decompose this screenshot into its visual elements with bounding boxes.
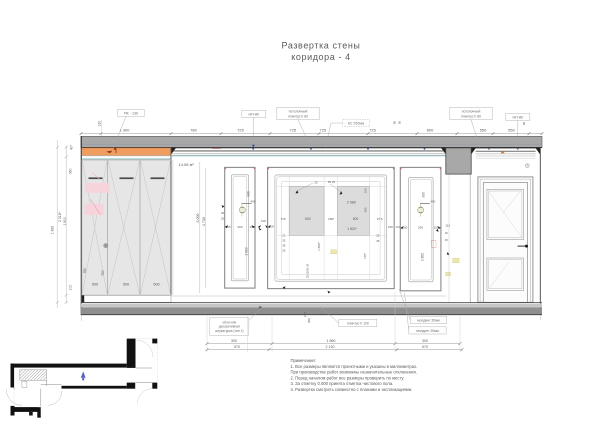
svg-text:1 800*: 1 800* (317, 241, 321, 251)
svg-text:725: 725 (237, 128, 244, 133)
svg-text:900: 900 (247, 191, 251, 197)
svg-text:1 892: 1 892 (51, 226, 55, 235)
svg-text:600: 600 (353, 217, 359, 221)
svg-text:715: 715 (280, 217, 285, 221)
svg-text:780: 780 (83, 268, 87, 274)
svg-text:180*: 180* (328, 217, 335, 221)
svg-text:27.5: 27.5 (377, 217, 383, 221)
svg-text:3. За отметку 0.000 принята от: 3. За отметку 0.000 принята отметка чист… (291, 381, 394, 386)
svg-text:потолочный: потолочный (462, 109, 481, 113)
svg-text:2 980: 2 980 (347, 200, 356, 204)
svg-text:290: 290 (418, 226, 423, 230)
svg-text:обои или: обои или (222, 320, 236, 324)
svg-text:780: 780 (190, 128, 197, 133)
svg-text:НП-80: НП-80 (248, 112, 259, 116)
svg-text:35 (100) 35: 35 (100) 35 (306, 263, 310, 278)
svg-text:100: 100 (402, 226, 407, 230)
svg-text:500: 500 (92, 282, 98, 286)
svg-text:плинтус h 80: плинтус h 80 (288, 114, 308, 118)
svg-text:1 800: 1 800 (244, 247, 248, 255)
svg-text:900: 900 (422, 192, 426, 198)
svg-text:100: 100 (388, 225, 393, 229)
svg-text:Примечания:: Примечания: (291, 358, 316, 363)
svg-text:400: 400 (430, 199, 435, 203)
svg-text:1 800: 1 800 (420, 253, 424, 261)
svg-text:25: 25 (445, 238, 449, 242)
svg-text:35: 35 (376, 239, 380, 243)
svg-text:600: 600 (305, 217, 311, 221)
svg-text:35: 35 (221, 211, 225, 215)
svg-text:(50): (50) (307, 318, 311, 323)
svg-text:570: 570 (234, 345, 240, 349)
svg-text:100: 100 (68, 285, 72, 291)
svg-text:290: 290 (237, 225, 242, 229)
svg-text:16: 16 (445, 231, 449, 235)
svg-text:КС 250мм: КС 250мм (348, 122, 365, 126)
svg-text:400: 400 (250, 200, 255, 204)
svg-text:110: 110 (445, 223, 450, 227)
svg-text:4. Развертки смотреть совместн: 4. Развертки смотреть совместно с планам… (291, 387, 413, 392)
svg-text:570: 570 (422, 345, 428, 349)
svg-text:потолочный: потолочный (289, 109, 308, 113)
svg-text:2 130: 2 130 (326, 345, 335, 349)
svg-text:молдинг 25мм: молдинг 25мм (416, 329, 439, 333)
svg-text:50: 50 (398, 121, 402, 125)
svg-text:600: 600 (363, 207, 367, 212)
svg-text:50: 50 (522, 122, 526, 126)
svg-text:25: 25 (314, 180, 318, 184)
svg-text:100: 100 (303, 312, 307, 317)
svg-text:300: 300 (422, 339, 428, 343)
svg-text:1 730: 1 730 (202, 217, 206, 226)
svg-text:плинтус h 100: плинтус h 100 (347, 322, 369, 326)
svg-text:130: 130 (97, 121, 101, 127)
svg-text:550: 550 (480, 128, 487, 133)
svg-text:725: 725 (369, 128, 376, 133)
svg-text:25: 25 (282, 249, 286, 253)
svg-text:600: 600 (427, 128, 434, 133)
svg-text:500: 500 (153, 282, 159, 286)
svg-text:725: 725 (290, 128, 297, 133)
svg-text:2. Перед началом работ все раз: 2. Перед началом работ все размеры прове… (291, 375, 405, 380)
svg-text:360: 360 (68, 168, 72, 174)
svg-text:Развертка стены: Развертка стены (282, 41, 361, 51)
svg-text:550: 550 (508, 128, 515, 133)
svg-text:50 25: 50 25 (328, 180, 336, 184)
svg-text:молдинг 35мм: молдинг 35мм (417, 318, 440, 322)
svg-text:ПК - 130: ПК - 130 (124, 111, 138, 115)
svg-text:штукатурка (тип 1): штукатурка (тип 1) (215, 329, 243, 333)
svg-text:100: 100 (261, 219, 266, 223)
svg-text:14.08 м²: 14.08 м² (179, 162, 195, 167)
svg-text:500: 500 (123, 282, 129, 286)
svg-text:730*: 730* (363, 252, 367, 259)
svg-text:1. Все размеры являются проект: 1. Все размеры являются проектными и ука… (291, 364, 418, 369)
svg-text:1 860: 1 860 (327, 339, 336, 343)
svg-text:750: 750 (101, 270, 105, 276)
svg-text:25: 25 (221, 217, 225, 221)
svg-text:коридора - 4: коридора - 4 (291, 52, 351, 62)
svg-text:1 900: 1 900 (63, 217, 67, 226)
svg-text:35: 35 (282, 244, 286, 248)
svg-text:При производстве работ возможн: При производстве работ возможны незначит… (291, 370, 417, 375)
svg-text:плинтус h 80: плинтус h 80 (461, 114, 481, 118)
svg-text:300: 300 (231, 339, 237, 343)
svg-text:НП-80: НП-80 (512, 115, 523, 119)
svg-text:725: 725 (320, 128, 327, 133)
svg-text:190: 190 (363, 188, 367, 193)
svg-text:40*: 40* (69, 144, 73, 150)
svg-text:100: 100 (433, 226, 438, 230)
svg-text:1 802*: 1 802* (347, 227, 357, 231)
svg-text:2 318*: 2 318* (58, 211, 62, 221)
svg-text:35: 35 (282, 239, 286, 243)
svg-text:80: 80 (392, 121, 396, 125)
svg-text:25: 25 (376, 234, 380, 238)
svg-text:декоративная: декоративная (219, 325, 240, 329)
svg-text:3 000: 3 000 (196, 214, 200, 223)
